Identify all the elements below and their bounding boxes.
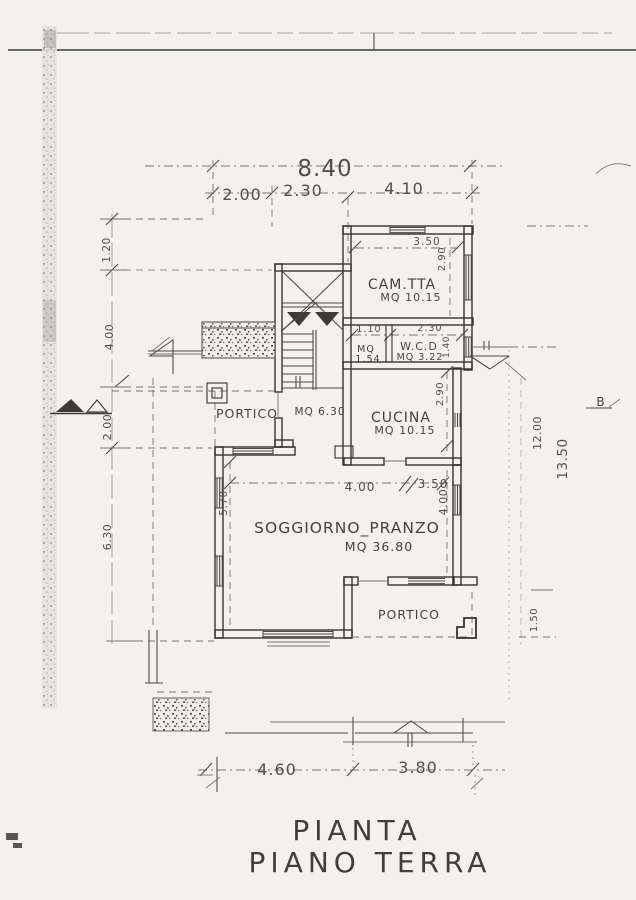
planter-top [202,322,275,358]
dim-cameretta-depth: 2.90 [437,247,448,271]
window-cameretta-right [464,255,472,300]
dim-top-2: 2.30 [283,181,323,200]
dim-right-3: 1.50 [529,608,540,632]
window-cucina-right [454,413,460,427]
dim-top-1: 2.00 [222,185,262,204]
dim-left-3: 2.00 [101,414,114,441]
label-soggiorno-name: SOGGIORNO_PRANZO [254,519,440,538]
window-soggiorno-left-2 [215,556,223,586]
dim-right-1: 12.00 [531,416,544,450]
dim-soggiorno-left-depth: 5.70 [218,490,230,515]
label-soggiorno-area: MQ 36.80 [345,539,413,554]
dim-bottom-2: 3.80 [398,758,438,777]
drawing-title-line1: PIANTA [292,814,421,847]
dim-left-4: 6.30 [101,524,114,551]
window-wc-right [464,337,472,357]
dim-bottom-1: 4.60 [257,760,297,779]
left-scan-band [42,26,57,708]
dim-overall-width: 8.40 [297,156,352,182]
label-wc-area: MQ 3.22 [397,352,444,363]
label-portico-left-name: PORTICO [216,406,278,421]
dim-wc-depth: 1.40 [442,336,452,358]
dim-cucina-depth: 2.90 [435,382,446,406]
dim-soggiorno-opening: 4.00 [345,480,376,494]
drawing-title-line2: PIANO TERRA [249,846,492,879]
floor-plan-drawing: 8.40 2.00 2.30 4.10 3.50 2.90 CAM.TTA MQ… [0,0,636,900]
label-portico-bottom-name: PORTICO [378,607,440,622]
dim-left-1: 1.20 [101,237,113,262]
label-portico-left-area: MQ 6.30 [294,406,345,418]
planter-bottom [153,698,209,731]
window-cameretta-top [389,226,426,234]
label-cucina-area: MQ 10.15 [374,424,435,437]
label-cameretta-area: MQ 10.15 [380,291,441,304]
window-portico-wall [408,578,445,584]
dim-left-2: 4.00 [103,324,116,351]
scanned-floor-plan: 8.40 2.00 2.30 4.10 3.50 2.90 CAM.TTA MQ… [0,0,636,900]
dim-antibagno-width: 1.10 [356,324,381,335]
window-soggiorno-top [233,447,273,455]
dim-right-2: 13.50 [555,438,571,479]
dim-top-3: 4.10 [384,179,424,198]
marker-section-b: B [596,395,605,409]
label-antibagno-area: 1.54 [355,354,380,365]
dim-cameretta-width: 3.50 [413,236,440,248]
dim-wc-width: 2.30 [417,323,442,334]
dim-soggiorno-right-depth: 4.00 [437,489,450,516]
